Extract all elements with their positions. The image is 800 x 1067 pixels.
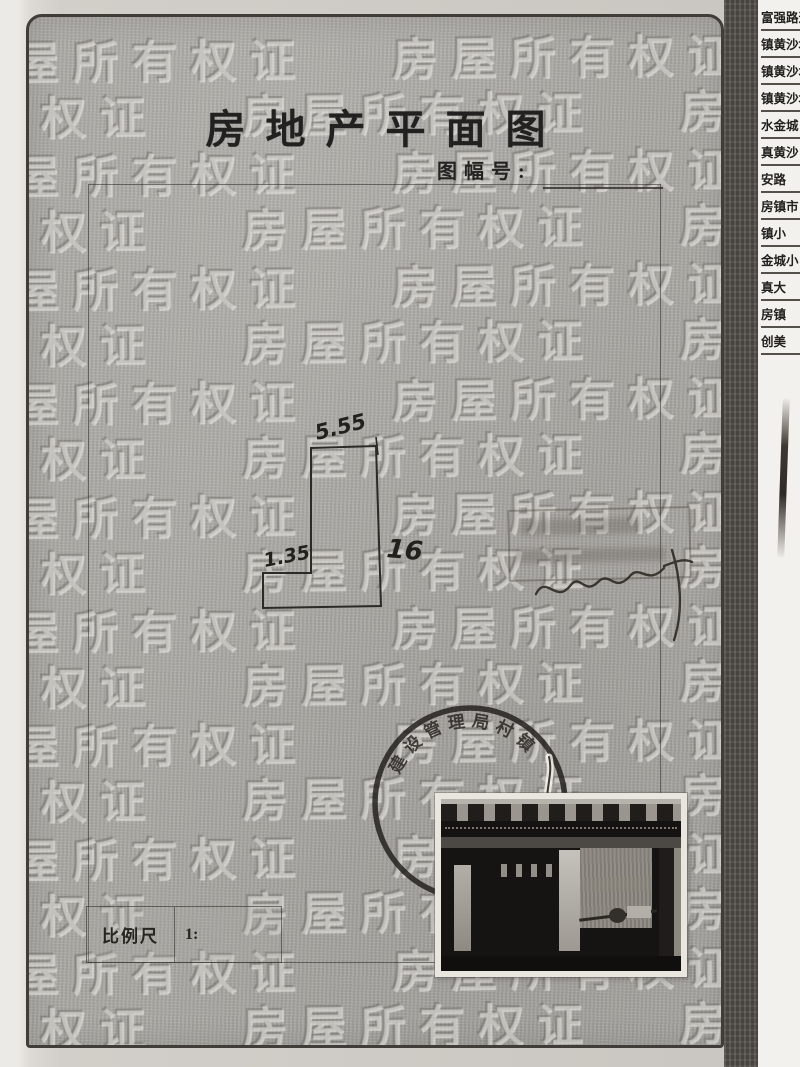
photo-right-column (659, 848, 674, 956)
floor-plan-outline (263, 446, 381, 608)
strip-row: 安路 (761, 168, 800, 193)
dimension-top: 5.55 (312, 409, 368, 445)
photo-hanging-items (501, 864, 565, 877)
side-strip-rows: 富强路道镇黄沙坨镇黄沙坨镇黄沙坨水金城真黄沙安路房镇市镇小金城小真大房镇创美 (758, 0, 800, 355)
photo-ground (441, 956, 681, 971)
strip-row: 创美 (761, 330, 800, 355)
strip-row: 镇黄沙坨 (761, 33, 800, 58)
dimension-left-step: 1.35 (262, 541, 312, 572)
building-photo (441, 799, 681, 971)
sheet-number-label: 图幅号: (437, 155, 532, 184)
strip-row: 镇黄沙坨 (761, 87, 800, 112)
certificate-page: 房屋所有权证 房屋所有权证 房屋所有权证 房屋所有权证房屋所有权证 房屋所有权证… (26, 14, 724, 1048)
photo-balustrade (441, 804, 681, 821)
photo-storefront (441, 848, 681, 956)
photo-pillar-middle (559, 850, 580, 951)
photo-signboard (441, 821, 681, 837)
strip-row: 房镇 (761, 303, 800, 328)
scan-edge-shadow (724, 0, 760, 1067)
scale-label: 比例尺 (87, 907, 175, 962)
strip-row: 镇黄沙坨 (761, 60, 800, 85)
page-title: 房地产平面图 (89, 97, 662, 155)
strip-row: 房镇市 (761, 195, 800, 220)
photo-pillar-left (454, 865, 471, 951)
strip-row: 金城小 (761, 249, 800, 274)
photo-lintel (441, 837, 681, 848)
dimension-right: 16 (385, 534, 424, 567)
building-photo-inset (435, 793, 687, 977)
photo-dark-object (609, 908, 626, 923)
photo-bright-box (627, 906, 651, 918)
strip-row: 富强路道 (761, 6, 800, 31)
strip-row: 镇小 (761, 222, 800, 247)
scale-value: 1: (175, 907, 281, 962)
strip-row: 水金城 (761, 114, 800, 139)
strip-row: 真黄沙 (761, 141, 800, 166)
handwritten-signature (524, 532, 714, 647)
sheet-number-blank-line (543, 187, 663, 189)
photo-right-edge (674, 848, 681, 956)
floor-plan-drawing: 5.55 1.35 16 (229, 407, 439, 642)
scale-box: 比例尺 1: (86, 906, 282, 963)
strip-row: 真大 (761, 276, 800, 301)
